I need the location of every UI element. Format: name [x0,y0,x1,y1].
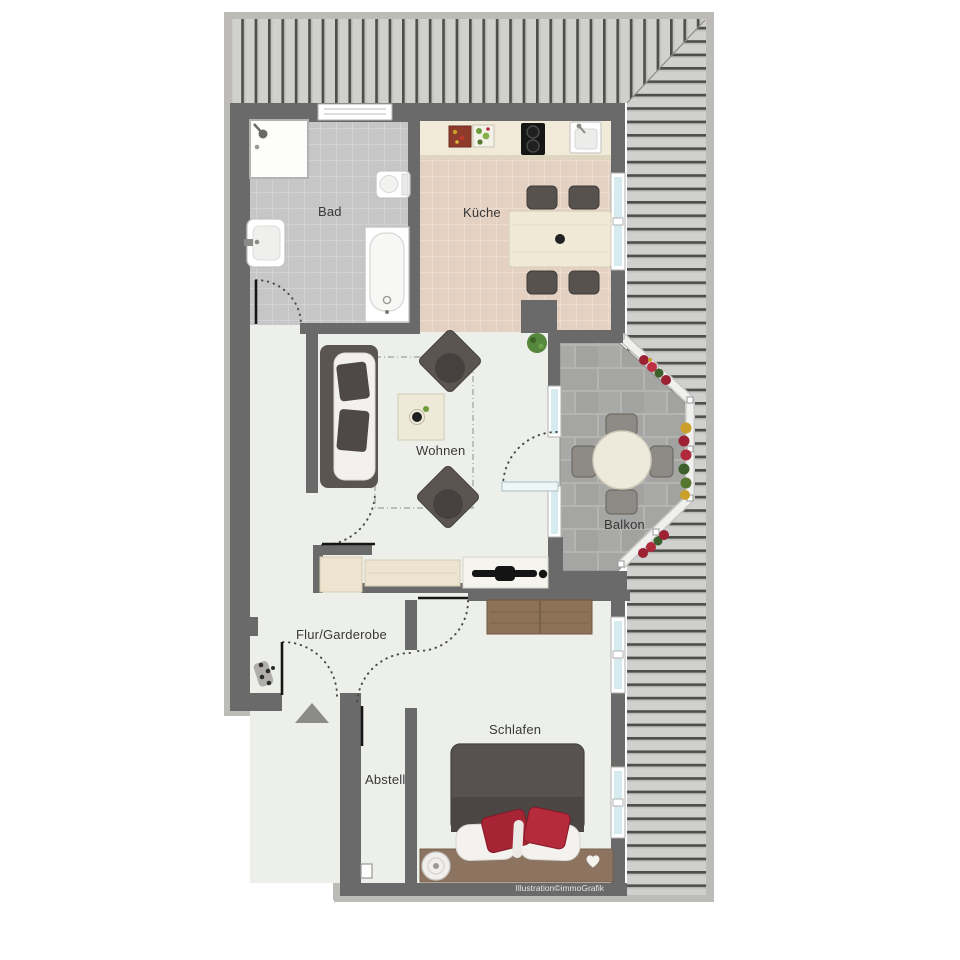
floor-plan-svg [0,0,960,960]
tv-lowboard [463,557,548,588]
speaker-icon [539,570,547,578]
schlafen-window-upper [611,617,625,693]
pillow-roll-center [512,820,524,858]
vegetable-board-icon [473,125,494,147]
bed [451,744,584,861]
room-label-balkon: Balkon [604,517,645,532]
watermark: Illustration©immoGrafik [474,883,604,893]
room-label-abstell: Abstell [365,772,405,787]
kitchen-counter-edge [420,155,611,159]
toilet-icon [376,171,410,198]
plant-detail-2 [538,343,543,348]
plant-detail [530,337,536,343]
kueche-window [611,173,625,270]
roof-top-band [232,19,706,103]
wall-pilaster [248,617,258,636]
wardrobe [487,600,592,634]
bedside-table-round [422,852,450,880]
schlafen-window-lower [611,767,625,838]
balcony-window-lower [548,486,561,537]
room-label-flur: Flur/Garderobe [296,627,387,642]
sofa [320,345,378,488]
bad-window [318,104,392,120]
room-label-wohnen: Wohnen [416,443,465,458]
balcony-door-leaf [502,482,558,491]
stove-icon [521,123,545,155]
shower-icon [250,120,308,178]
room-label-schlafen: Schlafen [489,722,541,737]
coffee-table [398,394,444,440]
abstell-fixture [361,864,372,878]
cutting-board-icon [449,126,471,147]
floor-plan: Bad Küche Wohnen Balkon Flur/Garderobe A… [0,0,960,960]
kitchen-sink-icon [570,122,601,153]
balcony-window-upper [548,386,561,437]
niche-cabinet [320,557,362,592]
sideboard [365,560,460,586]
room-label-kueche: Küche [463,205,501,220]
plant-icon [527,333,547,353]
bathtub-icon [365,227,409,322]
sink-icon [244,219,285,267]
balcony-table [593,431,651,489]
room-label-bad: Bad [318,204,342,219]
